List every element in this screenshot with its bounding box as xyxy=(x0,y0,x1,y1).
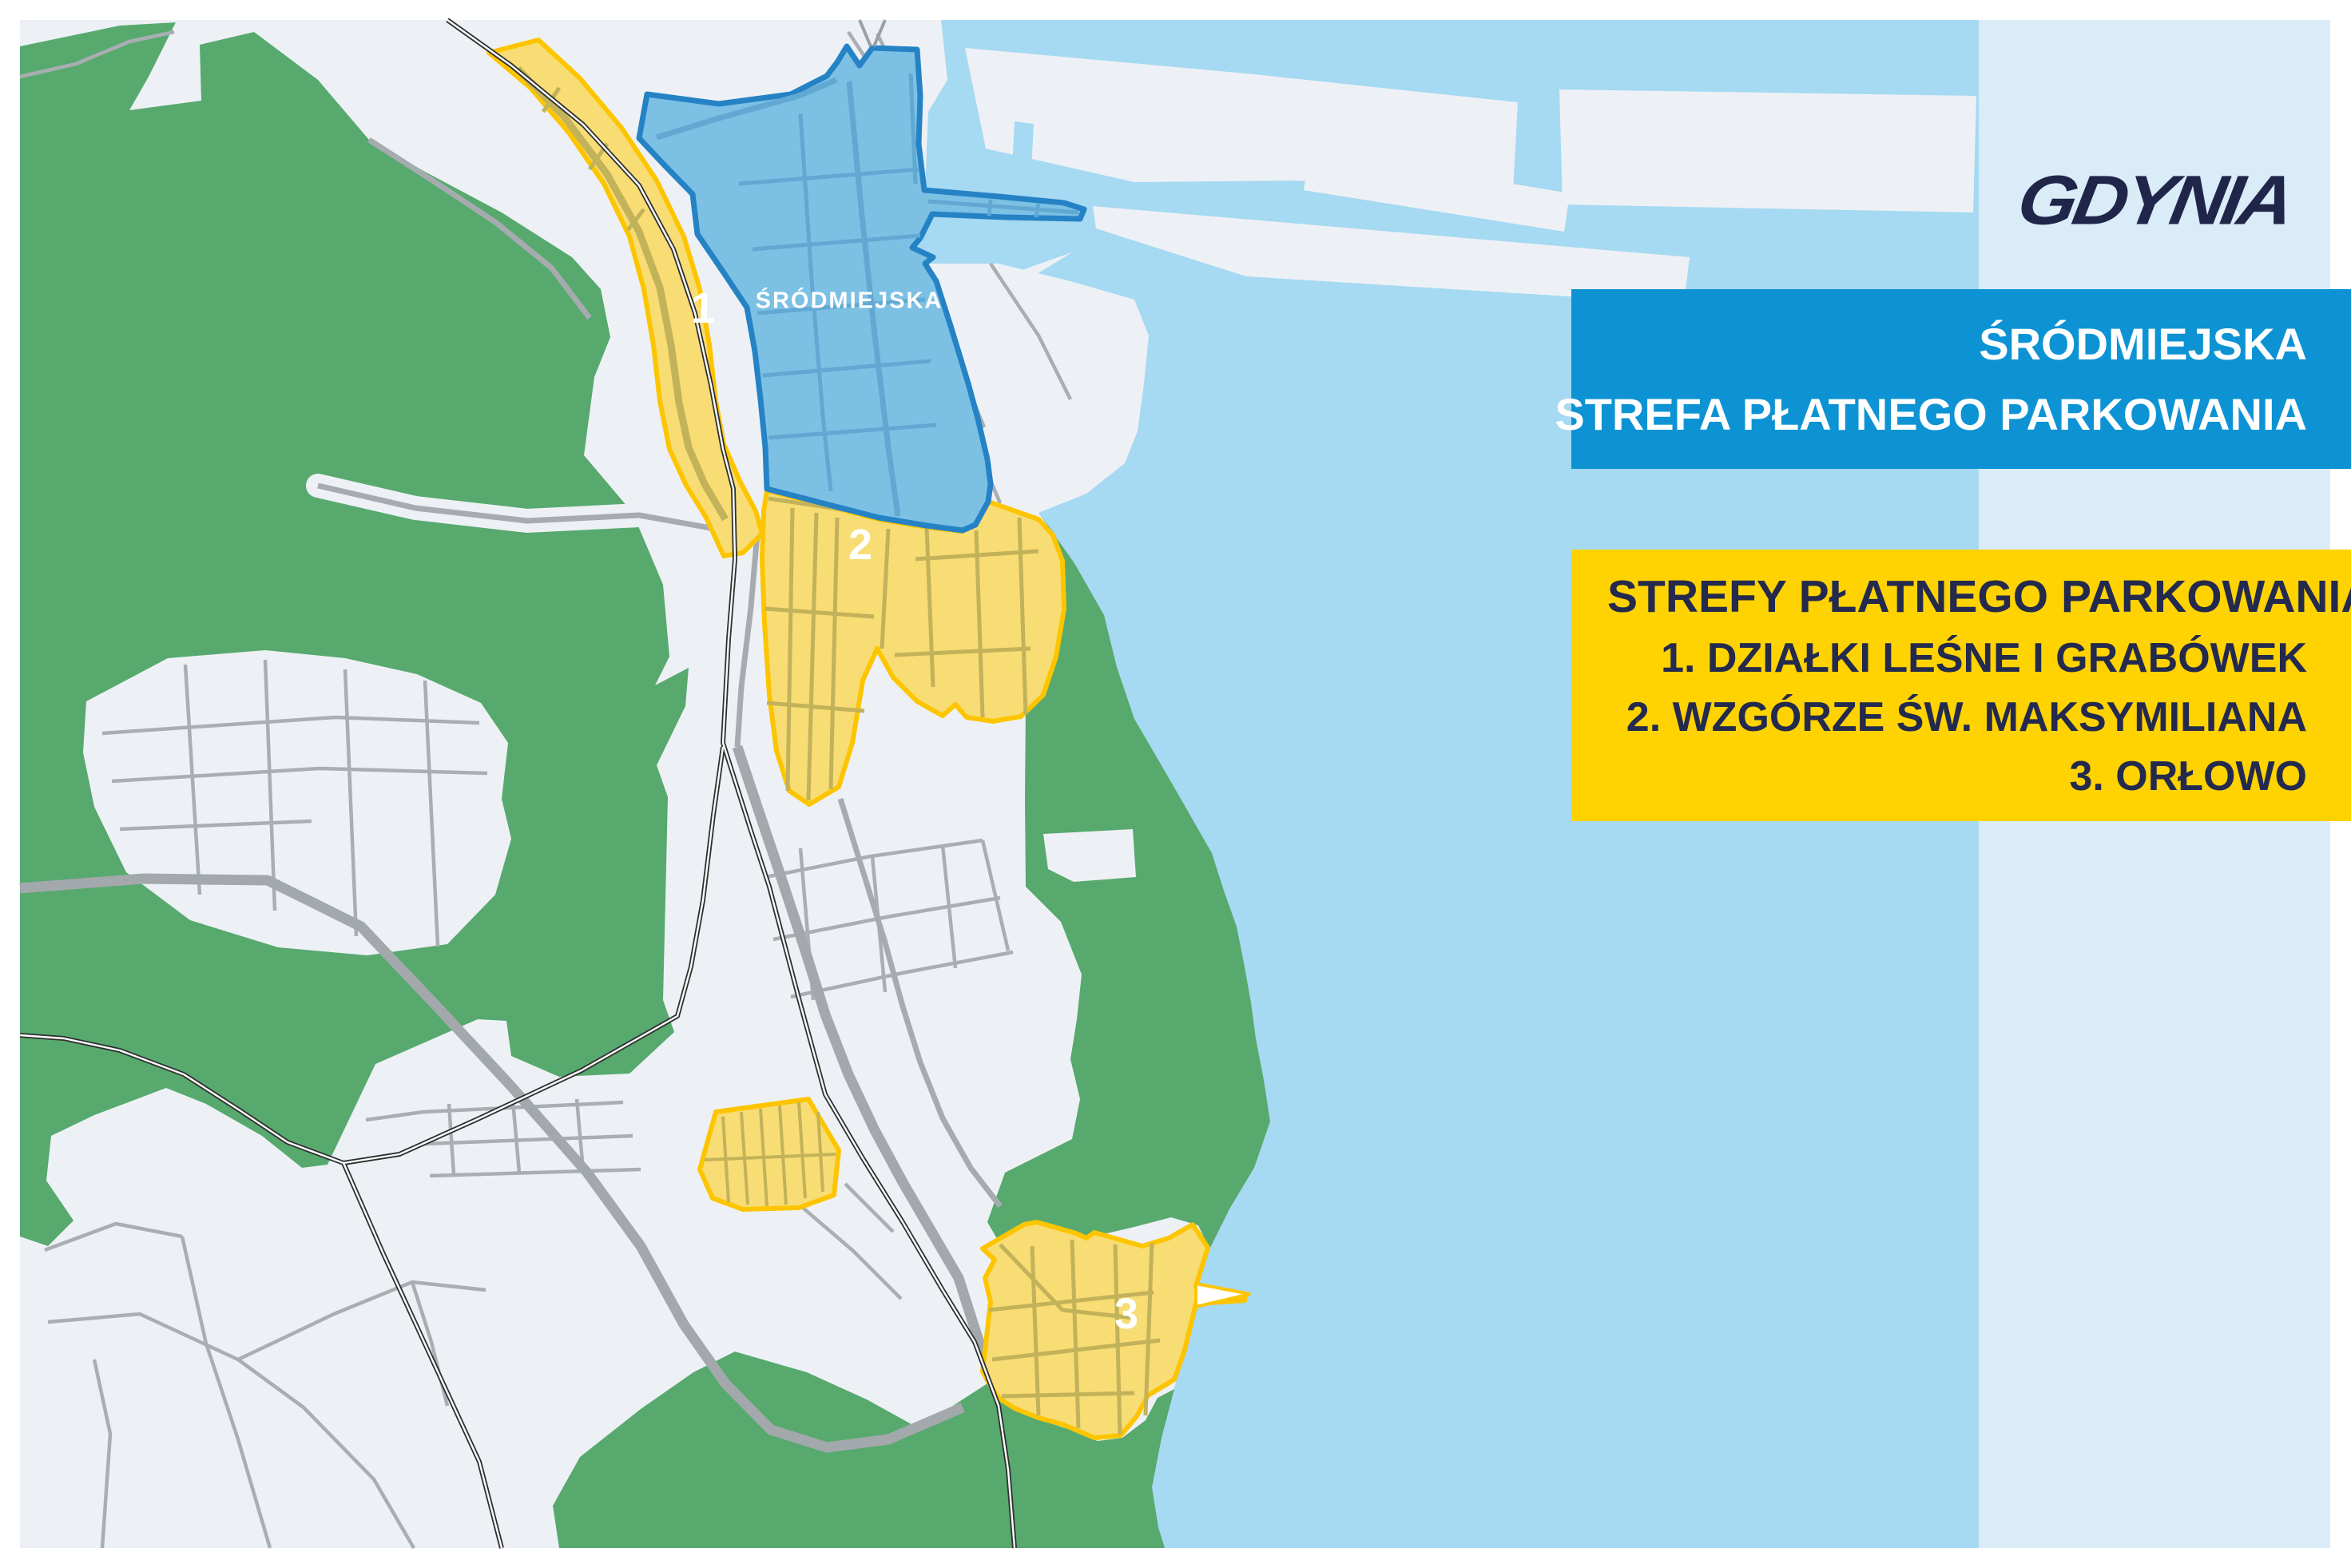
zone2-number-label: 2 xyxy=(848,520,872,570)
srodmiejska-district-label: ŚRÓDMIEJSKA xyxy=(756,288,943,315)
blue-banner-title: ŚRÓDMIEJSKA xyxy=(1979,320,2307,369)
zone-list-item-3: 3. ORŁOWO xyxy=(1607,752,2307,800)
zone1-number-label: 1 xyxy=(691,284,715,333)
blue-zone-banner: ŚRÓDMIEJSKA STREFA PŁATNEGO PARKOWANIA xyxy=(1571,289,2351,469)
gdynia-logo: GDYNIA xyxy=(1980,160,2329,240)
zone3-number-label: 3 xyxy=(1114,1289,1138,1339)
zone-list-item-2: 2. WZGÓRZE ŚW. MAKSYMILIANA xyxy=(1607,693,2307,741)
yellow-zones-banner: STREFY PŁATNEGO PARKOWANIA 1. DZIAŁKI LE… xyxy=(1571,550,2351,821)
quay-basin-slit xyxy=(1011,121,1034,186)
zone-list-item-1: 1. DZIAŁKI LEŚNE I GRABÓWEK xyxy=(1607,634,2307,682)
blue-banner-subtitle: STREFA PŁATNEGO PARKOWANIA xyxy=(1555,390,2307,439)
yellow-banner-heading: STREFY PŁATNEGO PARKOWANIA xyxy=(1607,570,2307,623)
poster: 1 2 3 ŚRÓDMIEJSKA GDYNIA ŚRÓDMIEJSKA STR… xyxy=(0,0,2351,1568)
